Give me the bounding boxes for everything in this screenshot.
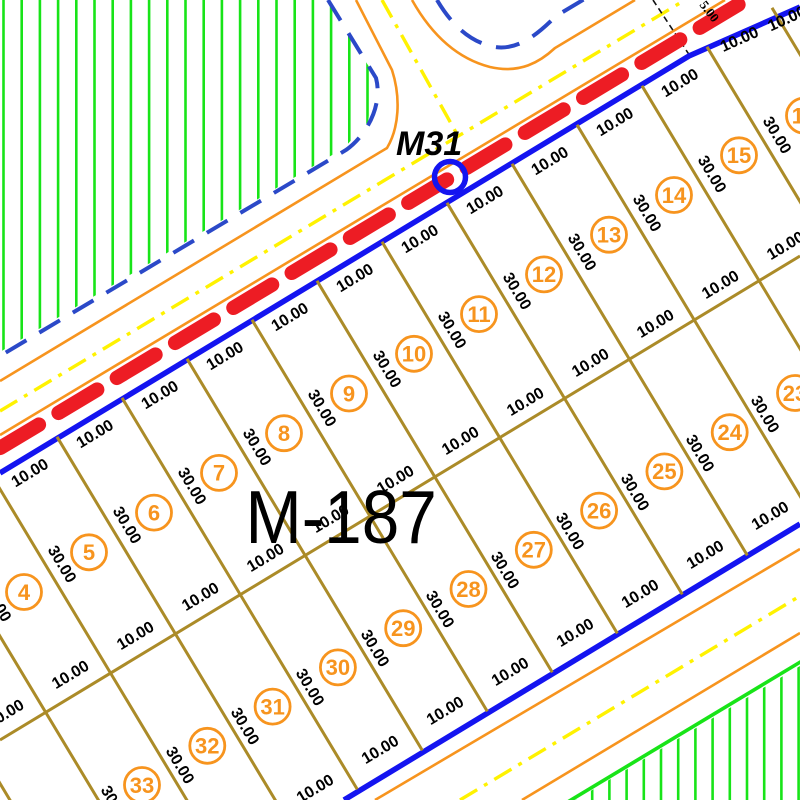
svg-text:33: 33 xyxy=(130,773,154,798)
svg-text:23: 23 xyxy=(783,381,800,406)
svg-text:11: 11 xyxy=(467,302,490,327)
svg-text:29: 29 xyxy=(391,616,415,641)
svg-text:31: 31 xyxy=(260,694,284,719)
svg-text:27: 27 xyxy=(522,538,546,563)
svg-text:9: 9 xyxy=(343,381,355,406)
svg-text:4: 4 xyxy=(18,580,31,605)
svg-text:14: 14 xyxy=(662,183,687,208)
svg-text:13: 13 xyxy=(597,223,621,248)
svg-text:7: 7 xyxy=(213,461,225,486)
svg-text:25: 25 xyxy=(652,459,676,484)
svg-text:28: 28 xyxy=(456,577,480,602)
svg-text:15: 15 xyxy=(727,143,751,168)
svg-text:24: 24 xyxy=(717,420,742,445)
svg-text:12: 12 xyxy=(532,262,556,287)
svg-text:10: 10 xyxy=(402,342,426,367)
svg-text:M31: M31 xyxy=(396,125,462,163)
svg-text:6: 6 xyxy=(148,500,160,525)
svg-text:30: 30 xyxy=(326,655,350,680)
svg-text:16: 16 xyxy=(792,103,800,128)
svg-text:32: 32 xyxy=(195,734,219,759)
svg-text:5: 5 xyxy=(83,540,95,565)
svg-text:M-187: M-187 xyxy=(246,476,437,560)
svg-text:26: 26 xyxy=(587,498,611,523)
svg-text:8: 8 xyxy=(278,421,290,446)
